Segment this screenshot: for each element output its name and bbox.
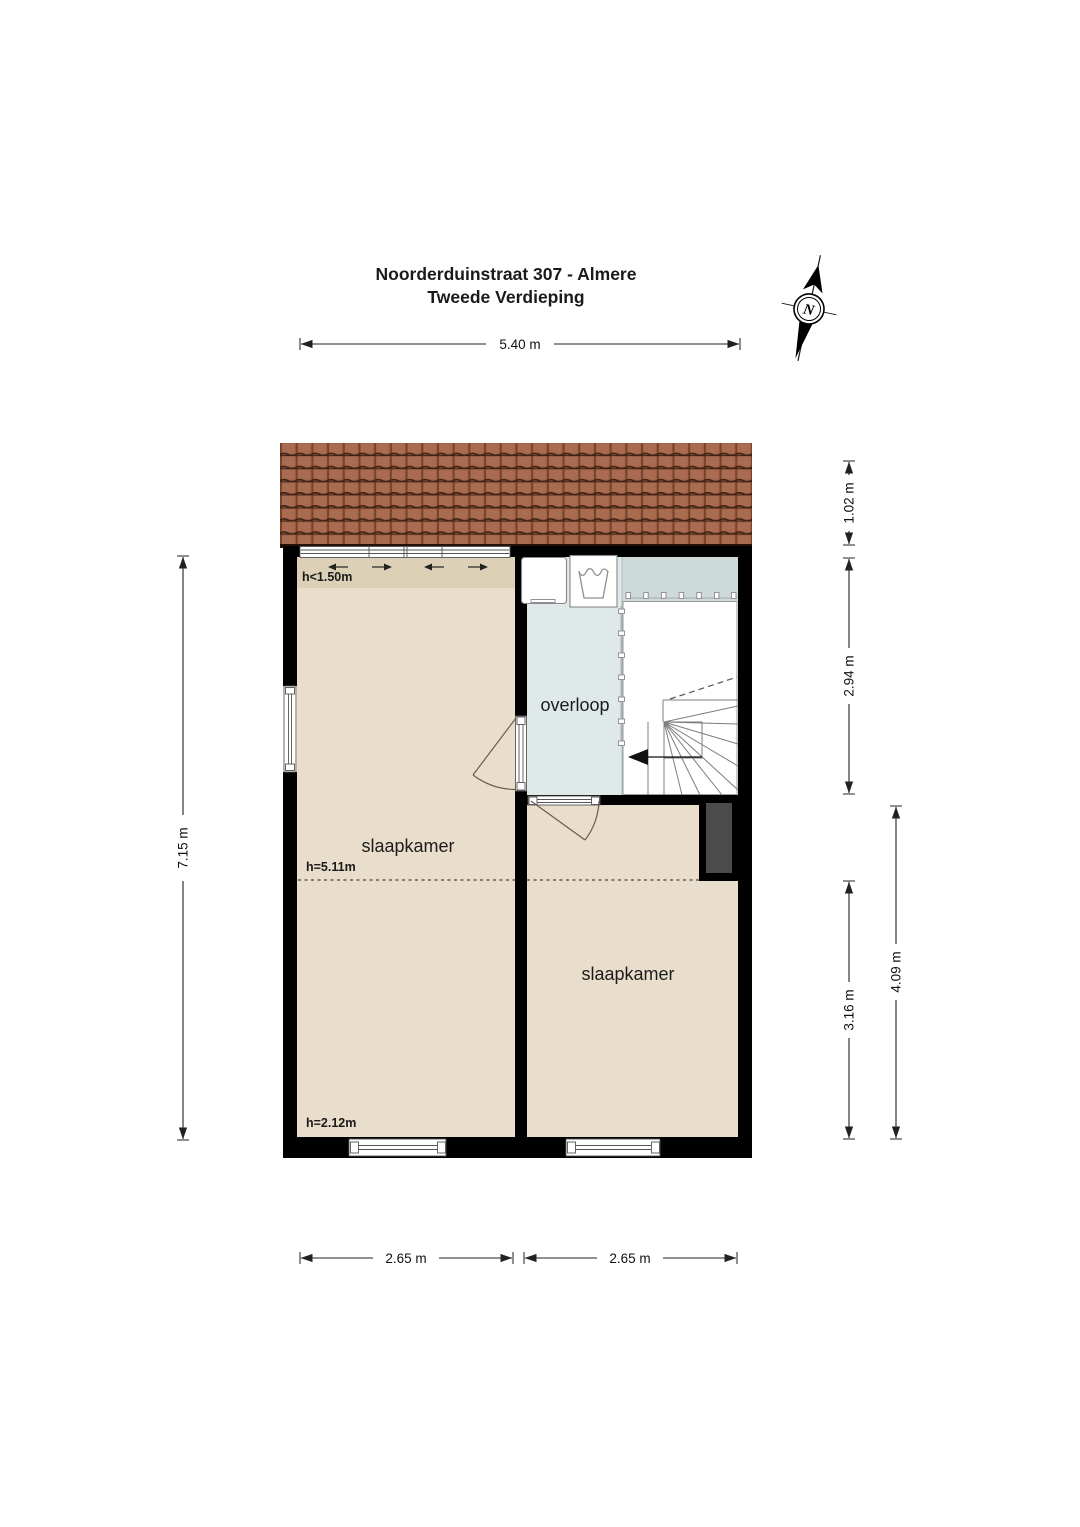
dimension-left: 7.15 m bbox=[174, 556, 192, 1140]
knee-height-note: h=2.12m bbox=[306, 1116, 356, 1130]
dimension-bottom-left: 2.65 m bbox=[300, 1249, 513, 1267]
dimension-top: 5.40 m bbox=[300, 335, 740, 353]
dim-right-roof-value: 1.02 m bbox=[842, 482, 857, 523]
ridge-height-note: h=5.11m bbox=[306, 860, 356, 874]
compass-north-pointer bbox=[803, 263, 828, 294]
dimension-right-landing: 2.94 m bbox=[840, 558, 858, 794]
dimension-bottom-right: 2.65 m bbox=[524, 1249, 737, 1267]
roof-tiles bbox=[280, 443, 752, 547]
bottom-window-left bbox=[349, 1139, 446, 1156]
bedroom-left-label: slaapkamer bbox=[361, 836, 454, 856]
dim-right-room-value: 3.16 m bbox=[842, 989, 857, 1030]
wall-left-lower bbox=[283, 772, 297, 1158]
landing-label: overloop bbox=[540, 695, 609, 715]
low-headroom-note: h<1.50m bbox=[302, 570, 352, 584]
wall-right bbox=[738, 557, 752, 1158]
chimney bbox=[706, 803, 732, 873]
dimension-right-total: 4.09 m bbox=[887, 806, 905, 1139]
washing-machine-icon bbox=[570, 556, 617, 608]
dim-top-value: 5.40 m bbox=[499, 337, 540, 352]
left-wall-window bbox=[284, 686, 296, 772]
roof bbox=[280, 443, 752, 548]
dim-bottom-right-value: 2.65 m bbox=[609, 1251, 650, 1266]
wall-left-upper bbox=[283, 557, 297, 686]
title-line1: Noorderduinstraat 307 - Almere bbox=[376, 264, 637, 284]
dim-bottom-left-value: 2.65 m bbox=[385, 1251, 426, 1266]
floor-plan-svg: Noorderduinstraat 307 - Almere Tweede Ve… bbox=[0, 0, 1080, 1527]
bedroom-right-label: slaapkamer bbox=[581, 964, 674, 984]
dimension-right-room: 3.16 m bbox=[840, 881, 858, 1139]
title-block: Noorderduinstraat 307 - Almere Tweede Ve… bbox=[376, 264, 637, 307]
wall-inner-lower bbox=[515, 791, 527, 1137]
dim-right-total-value: 4.09 m bbox=[889, 951, 904, 992]
title-line2: Tweede Verdieping bbox=[427, 287, 584, 307]
dim-right-landing-value: 2.94 m bbox=[842, 655, 857, 696]
north-compass-icon: N bbox=[771, 249, 848, 366]
dormer-window bbox=[300, 547, 510, 558]
bottom-window-right bbox=[566, 1139, 660, 1156]
cupboard-icon bbox=[522, 558, 567, 604]
dim-left-value: 7.15 m bbox=[176, 827, 191, 868]
dimension-right-roof: 1.02 m bbox=[840, 461, 858, 545]
compass-south-tail bbox=[792, 319, 814, 360]
floor-plan-page: Noorderduinstraat 307 - Almere Tweede Ve… bbox=[0, 0, 1080, 1527]
stairwell-floor bbox=[622, 601, 738, 795]
